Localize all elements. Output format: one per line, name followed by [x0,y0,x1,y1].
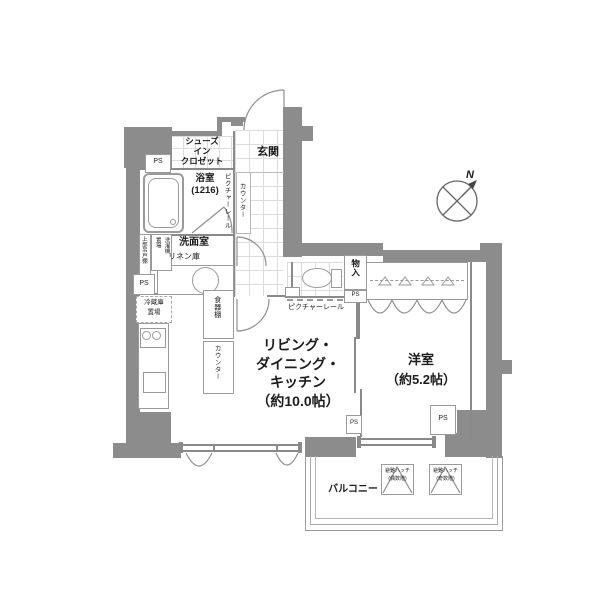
floor-plan: シューズ イン クロゼット PS 浴室 (1216) 玄関 ピクチャーレール カ… [0,0,609,603]
counter-label-hall: カウンター [237,183,245,233]
room-label-shoes-closet: シューズ イン クロゼット [170,136,234,167]
hatch-label-left: 避難ハッチ (偶数階) [380,468,415,483]
picture-rail-label-vertical: ピクチャーレール [222,173,230,237]
ps-label-ldk: PS [346,420,362,428]
washroom-door-arc [237,237,266,266]
compass-north-label: N [462,169,478,183]
entrance-door-arc [244,90,284,130]
room-label-washroom: 洗面室 [169,237,219,250]
counter-label-kitchen: カウンター [212,345,220,391]
room-label-storage: 物入 [350,259,361,287]
plan-linework [0,0,609,603]
hatch-label-right: 避難ハッチ (奇数階) [428,468,463,483]
ps-label-west: PS [430,415,456,424]
ps-label-storage: PS [344,292,367,300]
ps-label-top-left: PS [145,158,171,167]
ps-label-washroom: PS [133,280,155,289]
hanger-icons [379,277,454,285]
room-label-entrance: 玄関 [248,146,288,160]
ldk-door-arc [237,299,269,331]
room-label-ldk: リビング・ ダイニング・ キッチン （約10.0帖） [228,336,368,410]
bathroom-door-leaf [192,207,224,233]
closet-bifold-arcs [368,300,466,313]
picture-rail-label-horizontal: ピクチャーレール [287,304,345,313]
cupboard-label: 食器棚 [212,296,221,336]
casement-window-arc-1 [186,453,212,466]
room-label-balcony: バルコニー [322,484,384,497]
room-label-western: 洋室 （約5.2帖） [375,350,467,389]
washer-space-label: 洗濯機 置場 [153,237,171,269]
casement-window-arc-2 [276,453,298,465]
refrigerator-space-label: 冷蔵庫 置場 [136,298,172,318]
